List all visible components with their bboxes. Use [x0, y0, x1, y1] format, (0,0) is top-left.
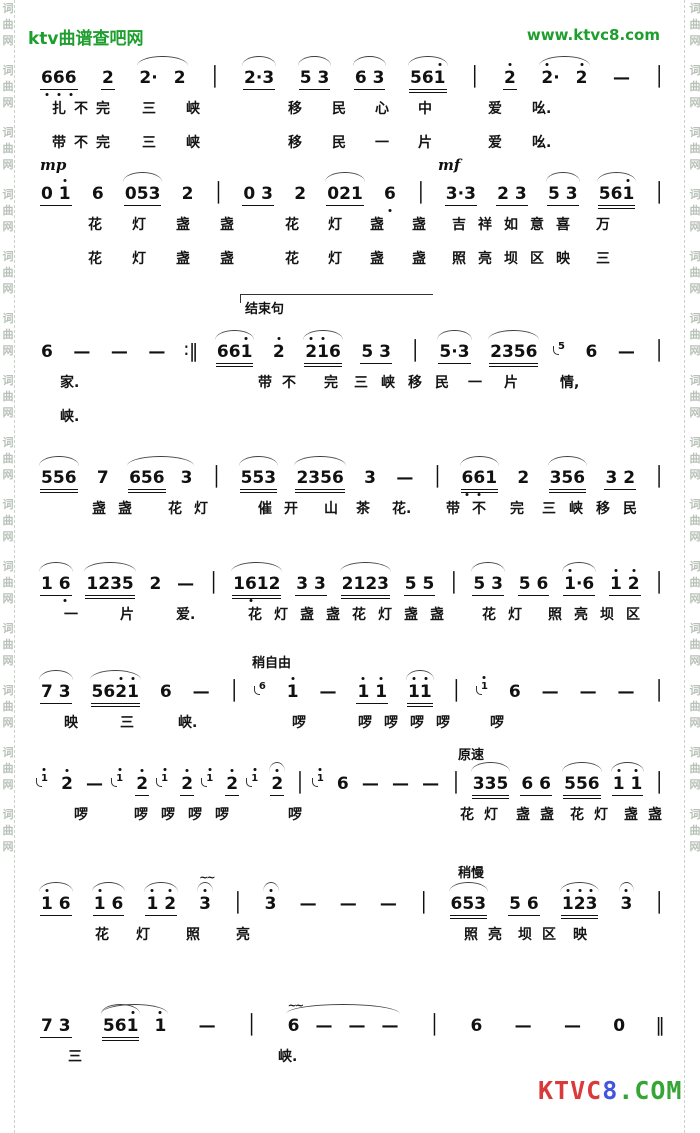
note-token: 5 3: [360, 342, 392, 364]
lyric-text: 花: [285, 214, 299, 234]
barline: │: [652, 340, 665, 362]
note-char: —: [193, 682, 210, 702]
lyric-text: 带不: [258, 372, 306, 392]
note-char: 3: [373, 68, 385, 88]
note-char: │: [208, 572, 219, 594]
note-char: 6: [451, 894, 463, 914]
note-token: 3: [620, 894, 634, 914]
note-char: —: [422, 774, 439, 794]
note-char: 6: [509, 682, 521, 702]
note-token: 1: [160, 773, 169, 784]
note-char: 5: [599, 184, 611, 204]
lyric-row: 扎不完三峡移民心中爱吆.: [40, 98, 664, 127]
note-char: 1: [351, 184, 363, 204]
barline: │: [212, 182, 225, 204]
note-token: 6: [584, 342, 598, 362]
lyric-text: 盏: [176, 214, 190, 234]
note-char: —: [362, 774, 379, 794]
note-char: —: [148, 342, 165, 362]
lyric-text: 花灯: [460, 804, 508, 824]
barline: │: [245, 1014, 258, 1036]
note-char: 7: [41, 1016, 53, 1036]
staff-system-6: 稍自由7 356216—│61—1 111│16———│映三峡.啰啰啰啰啰啰: [40, 652, 664, 741]
note-char: 1: [59, 184, 71, 204]
lyric-text: 灯: [328, 214, 342, 234]
note-token: 6: [159, 682, 173, 702]
note-token: 1 6: [93, 894, 125, 916]
note-char: 3: [262, 68, 274, 88]
lyric-text: 盏: [220, 248, 234, 268]
note-char: —: [315, 1016, 332, 1036]
note-token: 2356: [489, 342, 538, 367]
note-token: 2: [149, 574, 163, 594]
note-char: —: [392, 774, 409, 794]
note-group: 6563: [128, 468, 193, 493]
note-char: 3: [377, 574, 389, 594]
note-char: 2: [339, 184, 351, 204]
lyric-text: 亮: [236, 924, 250, 944]
note-token: 5: [557, 341, 566, 352]
note-char: 2: [541, 68, 553, 88]
note-char: 6: [337, 774, 349, 794]
note-char: 0: [41, 184, 53, 204]
note-token: 2: [272, 342, 286, 362]
note-token: —: [72, 342, 91, 362]
note-char: │: [469, 66, 480, 88]
lyric-text: 催开: [258, 498, 310, 518]
note-char: 3: [199, 894, 211, 914]
lyric-text: 盏: [220, 214, 234, 234]
note-char: 3: [485, 774, 497, 794]
note-char: 2: [623, 468, 635, 488]
note-token: 2·3: [243, 68, 275, 90]
barline: │: [450, 680, 463, 702]
barline: │: [652, 892, 665, 914]
lyric-text: 花灯: [482, 604, 534, 624]
score: 66622·2│2·35 36 3561│22·2—│扎不完三峡移民心中爱吆.带…: [0, 0, 700, 1133]
note-char: ·: [151, 68, 157, 88]
note-char: —: [542, 682, 559, 702]
note-char: 2: [174, 68, 186, 88]
lyric-text: 花.: [392, 498, 411, 518]
lyric-text: 花灯盏盏花灯盏盏: [248, 604, 456, 624]
lyric-text: 三: [142, 98, 156, 118]
note-char: 2: [115, 682, 127, 702]
note-char: 6: [53, 68, 65, 88]
note-char: 6: [355, 68, 367, 88]
note-char: 6: [588, 774, 600, 794]
note-token: 335: [472, 774, 510, 799]
barline: │: [208, 66, 221, 88]
note-token: 2: [135, 774, 149, 796]
note-token: 6: [508, 682, 522, 702]
lyric-row: 花灯盏盏花灯盏盏照亮坝区映三: [40, 248, 664, 277]
note-char: —: [340, 894, 357, 914]
note-char: 6: [585, 342, 597, 362]
note-char: —: [613, 68, 630, 88]
barline: │: [228, 680, 241, 702]
note-char: 3: [264, 468, 276, 488]
lyric-text: 灯: [132, 248, 146, 268]
lyric-text: 峡.: [278, 1046, 297, 1066]
lyric-text: 民: [332, 132, 346, 152]
barline: ‖: [654, 1014, 666, 1036]
note-token: 6~~: [287, 1016, 301, 1036]
note-char: 6: [332, 468, 344, 488]
note-token: 2: [293, 184, 307, 204]
dynamic-marking: mf: [438, 156, 460, 174]
note-char: 3: [261, 184, 273, 204]
barline: │: [231, 892, 244, 914]
note-char: 2: [576, 68, 588, 88]
lyric-text: 三: [120, 712, 134, 732]
note-char: 2: [490, 342, 502, 362]
lyric-text: 啰啰啰啰: [134, 804, 242, 824]
note-char: │: [653, 340, 664, 362]
lyric-text: 带不完: [52, 132, 118, 152]
note-char: 1: [353, 574, 365, 594]
logo-segment: .COM: [618, 1076, 682, 1105]
lyric-text: 灯: [328, 248, 342, 268]
note-char: 5: [122, 574, 134, 594]
barline: │: [293, 772, 306, 794]
note-char: —: [73, 342, 90, 362]
note-token: 5·3: [438, 342, 470, 364]
lyric-text: 盏: [370, 214, 384, 234]
lyric-text: 花灯: [168, 498, 220, 518]
lyric-text: 一: [64, 604, 78, 624]
note-char: 5: [252, 468, 264, 488]
note-token: —: [314, 1016, 333, 1036]
note-group: 2·2: [138, 68, 186, 88]
note-token: 561: [102, 1016, 140, 1041]
note-char: │: [429, 1014, 440, 1036]
lyric-text: 家.: [60, 372, 79, 392]
tempo-marking: 稍自由: [252, 652, 291, 671]
note-token: 2: [516, 468, 530, 488]
note-token: 053: [124, 184, 162, 206]
note-char: 6: [462, 468, 474, 488]
tempo-marking: 原速: [458, 744, 484, 763]
note-char: 1: [86, 574, 98, 594]
note-token: 0 1: [40, 184, 72, 206]
note-token: 5 3: [547, 184, 579, 206]
note-char: 3: [550, 468, 562, 488]
note-char: —: [564, 1016, 581, 1036]
note-char: —: [381, 1016, 398, 1036]
lyric-text: 带不: [446, 498, 498, 518]
note-char: 6: [329, 342, 341, 362]
note-token: 2: [575, 68, 589, 88]
note-char: 1: [564, 574, 576, 594]
note-char: 3: [181, 468, 193, 488]
note-char: 6: [65, 68, 77, 88]
lyric-text: 爱: [488, 98, 502, 118]
ending-bracket-label: 结束句: [245, 298, 284, 317]
note-char: 1: [317, 342, 329, 362]
note-token: 021: [326, 184, 364, 206]
note-token: 2 3: [496, 184, 528, 206]
lyric-text: 吆.: [532, 132, 551, 152]
lyric-row: 峡.: [40, 406, 664, 435]
note-token: —: [541, 682, 560, 702]
lyric-text: 中: [418, 98, 432, 118]
note-char: 5: [514, 342, 526, 362]
note-char: —: [580, 682, 597, 702]
note-token: 5 6: [508, 894, 540, 916]
note-char: 1: [375, 682, 387, 702]
note-char: 1: [116, 773, 123, 784]
note-token: 1 6: [40, 574, 72, 596]
lyric-text: 片: [418, 132, 432, 152]
note-char: 2: [273, 342, 285, 362]
note-token: —: [339, 894, 358, 914]
note-token: —: [361, 774, 380, 794]
lyric-row: 一片爱.花灯盏盏花灯盏盏花灯照亮坝区: [40, 604, 664, 633]
note-char: 5: [423, 574, 435, 594]
lyric-text: 盏盏: [624, 804, 672, 824]
note-token: 1612: [232, 574, 281, 599]
lyric-text: 爱.: [176, 604, 195, 624]
note-char: 5: [496, 774, 508, 794]
lyric-text: 花: [285, 248, 299, 268]
note-token: 656: [128, 468, 166, 493]
note-char: │: [653, 572, 664, 594]
note-char: —: [111, 342, 128, 362]
lyric-text: 盏: [176, 248, 190, 268]
note-char: 1: [317, 773, 324, 784]
note-char: 6: [115, 1016, 127, 1036]
note-group: 5611: [102, 1016, 167, 1041]
lyric-text: 盏盏: [92, 498, 144, 518]
note-char: 2: [181, 774, 193, 794]
barline: │: [414, 182, 427, 204]
lyric-text: 照亮坝区映: [452, 248, 582, 268]
note-char: 2: [164, 894, 176, 914]
note-token: 356: [549, 468, 587, 493]
ktvc8-logo[interactable]: KTVC8.COM: [538, 1076, 683, 1105]
note-token: —: [319, 682, 338, 702]
note-char: 0: [243, 184, 255, 204]
note-char: 3: [364, 468, 376, 488]
barline: │: [210, 466, 223, 488]
note-char: 2: [504, 68, 516, 88]
note-char: │: [409, 340, 420, 362]
note-token: 7 3: [40, 682, 72, 704]
note-token: —: [299, 894, 318, 914]
lyric-text: 峡.: [178, 712, 197, 732]
note-char: 2: [365, 574, 377, 594]
notes-row: 1 61 61 23~~│3———│6535 61233│: [40, 862, 664, 919]
staff-system-7: 原速12—12121212│16———│3356 65561 1│啰啰啰啰啰啰花…: [40, 744, 664, 833]
lyric-text: 啰: [490, 712, 504, 732]
note-group: 6~~———: [287, 1016, 400, 1036]
note-token: 653: [450, 894, 488, 919]
note-char: 2: [226, 774, 238, 794]
staff-system-4: 55676563│55323563—│66123563 2│盏盏花灯催开山茶花.…: [40, 440, 664, 527]
note-char: 2: [182, 184, 194, 204]
note-char: │: [418, 892, 429, 914]
barline: │: [449, 772, 462, 794]
lyric-row: 三峡.: [40, 1046, 664, 1075]
note-char: 2: [294, 184, 306, 204]
note-char: 2: [98, 574, 110, 594]
note-token: 3 2: [604, 468, 636, 490]
barline: │: [653, 66, 666, 88]
note-char: 1: [233, 574, 245, 594]
note-char: 3: [473, 774, 485, 794]
note-char: —: [177, 574, 194, 594]
note-token: 2: [101, 68, 115, 90]
note-char: 3: [379, 342, 391, 362]
note-token: 1 2: [609, 574, 641, 596]
note-token: —: [198, 1016, 217, 1036]
note-char: 6: [92, 184, 104, 204]
note-char: 1: [241, 342, 253, 362]
notes-row: 7 35611—│6~~———│6——0‖: [40, 984, 664, 1041]
note-token: 1: [316, 773, 325, 784]
notes-row: 0 160532│0 320216│3·32 35 3561│: [40, 156, 664, 209]
note-token: —: [380, 1016, 399, 1036]
logo-segment: KTVC: [538, 1076, 602, 1105]
notes-row: 55676563│55323563—│66123563 2│: [40, 440, 664, 493]
note-char: —: [380, 894, 397, 914]
note-token: 3: [180, 468, 194, 488]
note-char: 1: [631, 774, 643, 794]
note-char: 6: [384, 184, 396, 204]
note-char: │: [211, 466, 222, 488]
note-token: 3: [363, 468, 377, 488]
note-char: 2: [497, 184, 509, 204]
lyric-text: 三峡移民: [354, 372, 462, 392]
notes-row: 66622·2│2·35 36 3561│22·2—│: [40, 44, 664, 93]
note-token: —: [421, 774, 440, 794]
lyric-text: 爱: [488, 132, 502, 152]
note-char: 5: [564, 774, 576, 794]
note-char: 1: [408, 682, 420, 702]
note-char: 6: [521, 774, 533, 794]
lyric-text: 啰: [74, 804, 88, 824]
lyric-row: 花灯照亮照亮坝区映: [40, 924, 664, 953]
lyric-text: 三: [68, 1046, 82, 1066]
note-token: 2·: [540, 68, 560, 88]
note-token: —: [514, 1016, 533, 1036]
note-char: 1: [41, 773, 48, 784]
lyric-text: 完: [510, 498, 524, 518]
note-char: —: [86, 774, 103, 794]
notes-row: 6———∶‖66122165 3│5·3235656—│: [40, 292, 664, 367]
note-token: 2: [503, 68, 517, 90]
note-char: 1: [287, 682, 299, 702]
note-char: │: [213, 182, 224, 204]
note-token: 6: [40, 342, 54, 362]
lyric-text: 花灯: [570, 804, 618, 824]
note-char: 2: [269, 574, 281, 594]
note-token: 6: [383, 184, 397, 204]
note-char: 2: [628, 574, 640, 594]
lyric-text: 一: [375, 132, 389, 152]
note-char: 6: [526, 342, 538, 362]
note-char: │: [415, 182, 426, 204]
note-char: 0: [125, 184, 137, 204]
lyric-text: 盏: [412, 248, 426, 268]
note-char: —: [199, 1016, 216, 1036]
note-token: 1 1: [356, 682, 388, 704]
note-token: 1 6: [40, 894, 72, 916]
note-char: 3: [566, 184, 578, 204]
note-char: 5: [462, 894, 474, 914]
note-token: 123: [561, 894, 599, 919]
note-char: 3: [59, 682, 71, 702]
note-char: 2: [271, 774, 283, 794]
lyric-text: 片: [504, 372, 518, 392]
note-char: 6: [259, 681, 266, 692]
note-token: 1 1: [612, 774, 644, 796]
note-char: 6: [527, 894, 539, 914]
note-group: 2·2: [540, 68, 588, 88]
note-token: —: [176, 574, 195, 594]
note-char: 1: [206, 773, 213, 784]
note-char: 5: [558, 341, 565, 352]
note-char: 1: [161, 773, 168, 784]
note-char: 6: [59, 574, 71, 594]
note-token: 1: [286, 682, 300, 702]
staff-system-2: mpmf0 160532│0 320216│3·32 35 3561│花灯盏盏花…: [40, 156, 664, 277]
note-char: 2: [296, 468, 308, 488]
note-char: 5: [548, 184, 560, 204]
note-token: —: [579, 682, 598, 702]
note-char: 1: [481, 681, 488, 692]
lyric-text: 山: [324, 498, 338, 518]
note-token: 1: [480, 681, 489, 692]
note-char: 5: [439, 342, 451, 362]
note-char: —: [617, 682, 634, 702]
note-char: 5: [300, 68, 312, 88]
note-char: 6: [288, 1016, 300, 1036]
note-char: │: [653, 892, 664, 914]
lyric-text: 扎不完: [52, 98, 118, 118]
note-token: —: [379, 894, 398, 914]
lyric-row: 映三峡.啰啰啰啰啰啰: [40, 712, 664, 741]
note-char: │: [229, 680, 240, 702]
note-char: 3: [502, 342, 514, 362]
note-char: 5: [141, 468, 153, 488]
note-token: 553: [240, 468, 278, 493]
note-token: 6: [336, 774, 350, 794]
note-char: 5: [92, 682, 104, 702]
lyric-text: 灯: [136, 924, 150, 944]
note-token: 5 6: [518, 574, 550, 596]
note-token: 5 5: [404, 574, 436, 596]
note-token: 556: [40, 468, 78, 493]
page: { "header": { "site_name": "ktv曲谱查吧网", "…: [0, 0, 700, 1133]
note-char: 5: [473, 574, 485, 594]
barline: │: [447, 572, 460, 594]
note-char: 2: [574, 894, 586, 914]
lyric-text: 盏: [412, 214, 426, 234]
note-char: 1: [154, 1016, 166, 1036]
note-char: 6: [217, 342, 229, 362]
barline: │: [417, 892, 430, 914]
notes-row: 1 612352—│16123 321235 5│5 35 61·61 2│: [40, 546, 664, 599]
note-char: 3: [149, 184, 161, 204]
note-char: 5: [410, 68, 422, 88]
note-token: —: [192, 682, 211, 702]
barline: │: [207, 572, 220, 594]
note-token: 561: [409, 68, 447, 93]
note-char: 3: [621, 894, 633, 914]
lyric-text: 映: [64, 712, 78, 732]
